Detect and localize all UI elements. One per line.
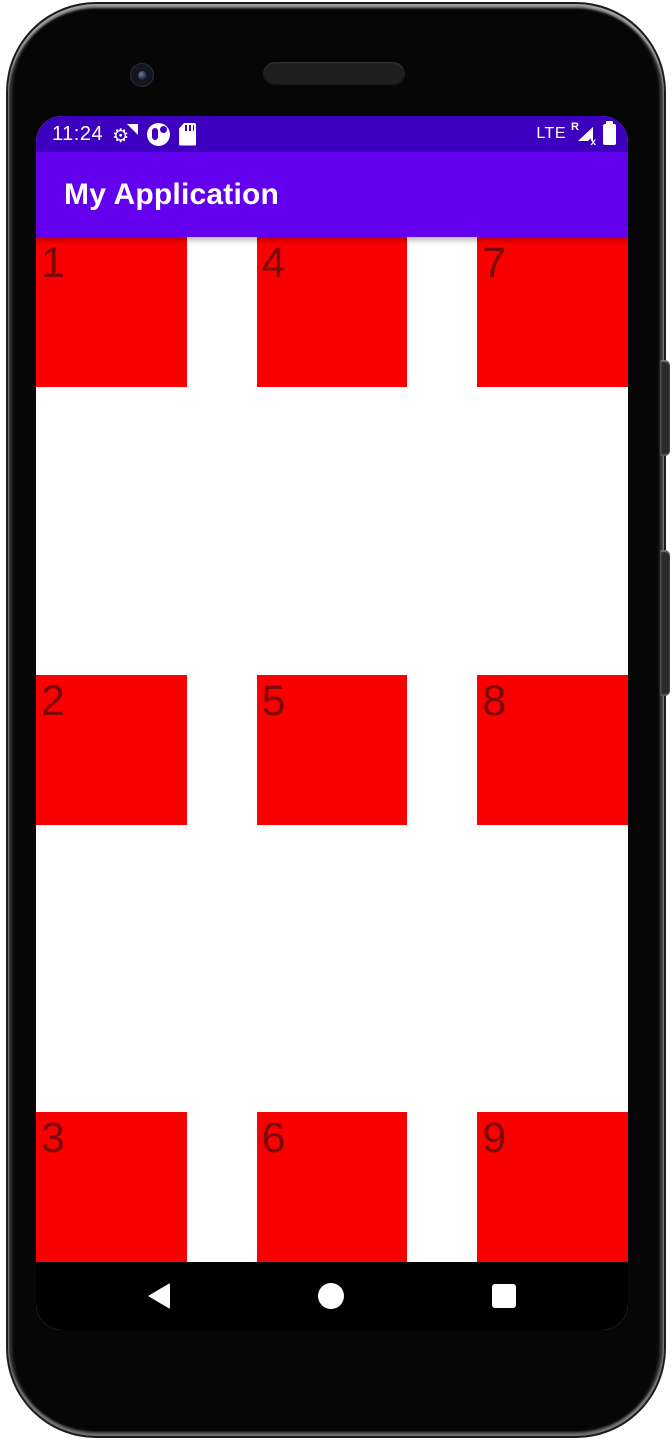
front-camera bbox=[130, 63, 154, 87]
setup-gear-icon: ⚙ bbox=[112, 122, 138, 146]
grid-cell-2: 2 bbox=[36, 675, 187, 825]
navigation-bar bbox=[36, 1262, 628, 1330]
signal-no-connection-icon: R x bbox=[571, 122, 595, 146]
grid-row-3: 3 6 9 bbox=[36, 1112, 628, 1262]
volume-button[interactable] bbox=[660, 550, 670, 696]
status-clock: 11:24 bbox=[52, 123, 103, 146]
earpiece-speaker bbox=[263, 62, 405, 86]
device-screen: 11:24 ⚙ LTE R x bbox=[36, 116, 628, 1330]
battery-icon bbox=[603, 124, 616, 145]
network-type-label: LTE bbox=[536, 125, 566, 143]
home-icon[interactable] bbox=[318, 1283, 344, 1309]
app-title: My Application bbox=[64, 178, 279, 212]
grid-cell-7: 7 bbox=[477, 237, 628, 387]
status-bar: 11:24 ⚙ LTE R x bbox=[36, 116, 628, 152]
grid-cell-1: 1 bbox=[36, 237, 187, 387]
grid-cell-8: 8 bbox=[477, 675, 628, 825]
grid-cell-4: 4 bbox=[257, 237, 408, 387]
grid-content: 1 4 7 2 5 8 3 6 9 bbox=[36, 237, 628, 1262]
grid-cell-5: 5 bbox=[257, 675, 408, 825]
emulator-screenshot: 11:24 ⚙ LTE R x bbox=[0, 0, 672, 1440]
phone-frame: 11:24 ⚙ LTE R x bbox=[8, 4, 664, 1436]
back-icon[interactable] bbox=[148, 1283, 170, 1309]
camera-lens-icon bbox=[138, 71, 147, 80]
storage-status-icon bbox=[147, 123, 170, 146]
grid-cell-3: 3 bbox=[36, 1112, 187, 1262]
app-bar: My Application bbox=[36, 152, 628, 237]
grid-row-2: 2 5 8 bbox=[36, 675, 628, 825]
sd-card-icon bbox=[179, 123, 196, 146]
grid-cell-9: 9 bbox=[477, 1112, 628, 1262]
recents-icon[interactable] bbox=[492, 1284, 516, 1308]
power-button[interactable] bbox=[660, 360, 670, 456]
wifi-wedge-icon bbox=[127, 124, 138, 135]
status-right-cluster: LTE R x bbox=[536, 122, 616, 146]
grid-cell-6: 6 bbox=[257, 1112, 408, 1262]
grid-row-1: 1 4 7 bbox=[36, 237, 628, 387]
